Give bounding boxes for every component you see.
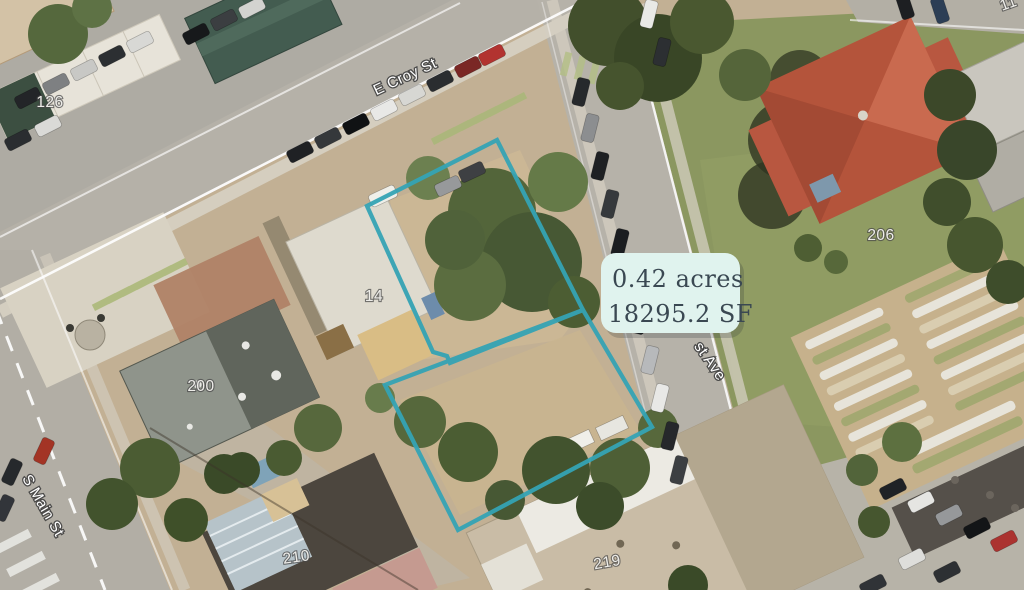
building-number-14: 14	[365, 288, 383, 305]
building-number-200: 200	[187, 378, 214, 395]
building-number-126: 126	[36, 94, 63, 111]
building-number-206: 206	[867, 227, 894, 244]
map-canvas[interactable]: E Croy St S Main St st Ave 126 14 200 20…	[0, 0, 1024, 590]
area-label: 0.42 acres 18295.2 SF	[601, 253, 753, 338]
area-acres-text: 0.42 acres	[612, 265, 744, 293]
area-sf-text: 18295.2 SF	[608, 300, 753, 328]
aerial-map: E Croy St S Main St st Ave 126 14 200 20…	[0, 0, 1024, 590]
